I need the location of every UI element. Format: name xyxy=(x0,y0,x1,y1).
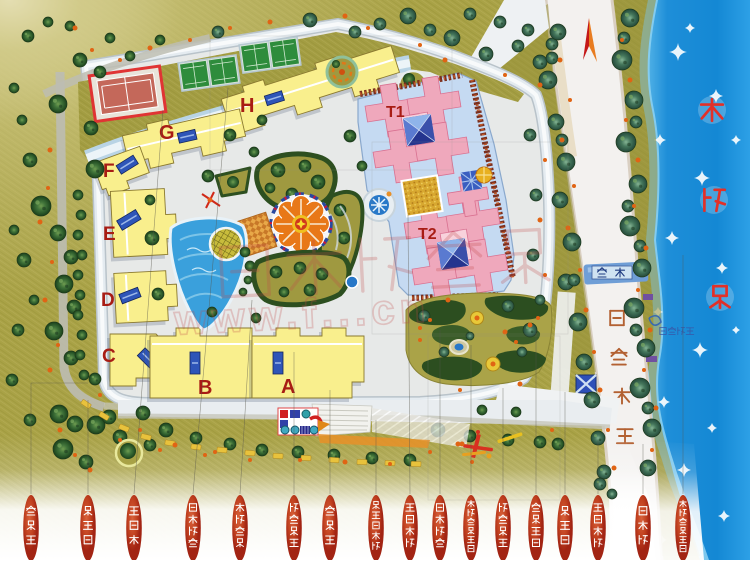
svg-text:D: D xyxy=(101,290,115,311)
svg-text:T2: T2 xyxy=(418,226,437,243)
svg-text:A: A xyxy=(281,376,295,398)
svg-text:T1: T1 xyxy=(386,104,405,121)
svg-text:F: F xyxy=(103,161,115,182)
svg-text:E: E xyxy=(103,224,116,245)
svg-text:C: C xyxy=(102,346,116,367)
svg-text:H: H xyxy=(240,95,254,117)
svg-text:B: B xyxy=(198,377,212,399)
